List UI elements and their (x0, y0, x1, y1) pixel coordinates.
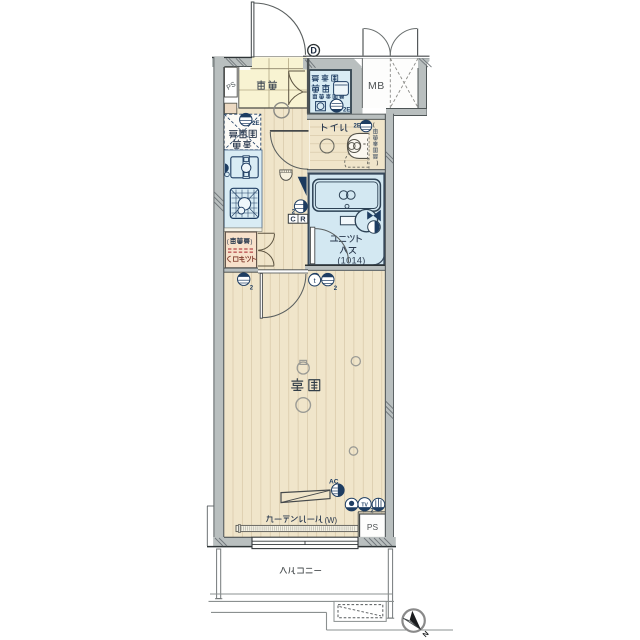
svg-text:PS: PS (367, 522, 379, 532)
svg-text:R: R (300, 215, 306, 224)
svg-text:2E: 2E (252, 121, 259, 127)
svg-text:(1014): (1014) (337, 256, 365, 266)
svg-text:2E: 2E (343, 108, 350, 114)
svg-text:2E: 2E (354, 124, 361, 130)
svg-text:D: D (310, 46, 317, 56)
svg-text:t: t (314, 276, 316, 285)
svg-text:(W): (W) (325, 516, 338, 525)
svg-text:): ) (250, 239, 252, 246)
svg-text:MB: MB (368, 80, 385, 92)
svg-text:C: C (290, 215, 296, 224)
